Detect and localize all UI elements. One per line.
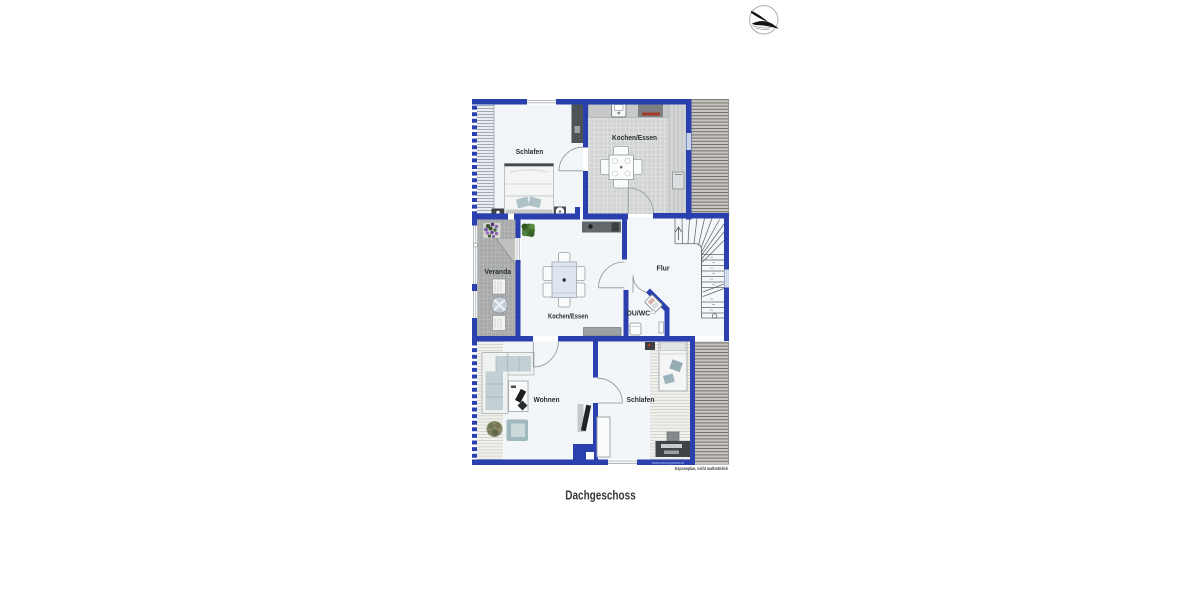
svg-text:DU/WC: DU/WC — [627, 309, 651, 318]
svg-text:Dachgeschoss: Dachgeschoss — [565, 487, 636, 502]
svg-text:Exposeplan, nicht maßstäblich: Exposeplan, nicht maßstäblich — [675, 466, 728, 471]
svg-text:Flur: Flur — [657, 264, 670, 273]
svg-text:Kochen/Essen: Kochen/Essen — [548, 312, 588, 321]
svg-text:Veranda: Veranda — [485, 267, 512, 276]
svg-text:Kochen/Essen: Kochen/Essen — [612, 133, 657, 142]
svg-text:Schlafen: Schlafen — [516, 147, 544, 156]
svg-text:Schlafen: Schlafen — [627, 395, 655, 404]
svg-text:Wohnen: Wohnen — [534, 395, 560, 404]
svg-text:www.premium-grundriss.de: www.premium-grundriss.de — [651, 461, 684, 465]
